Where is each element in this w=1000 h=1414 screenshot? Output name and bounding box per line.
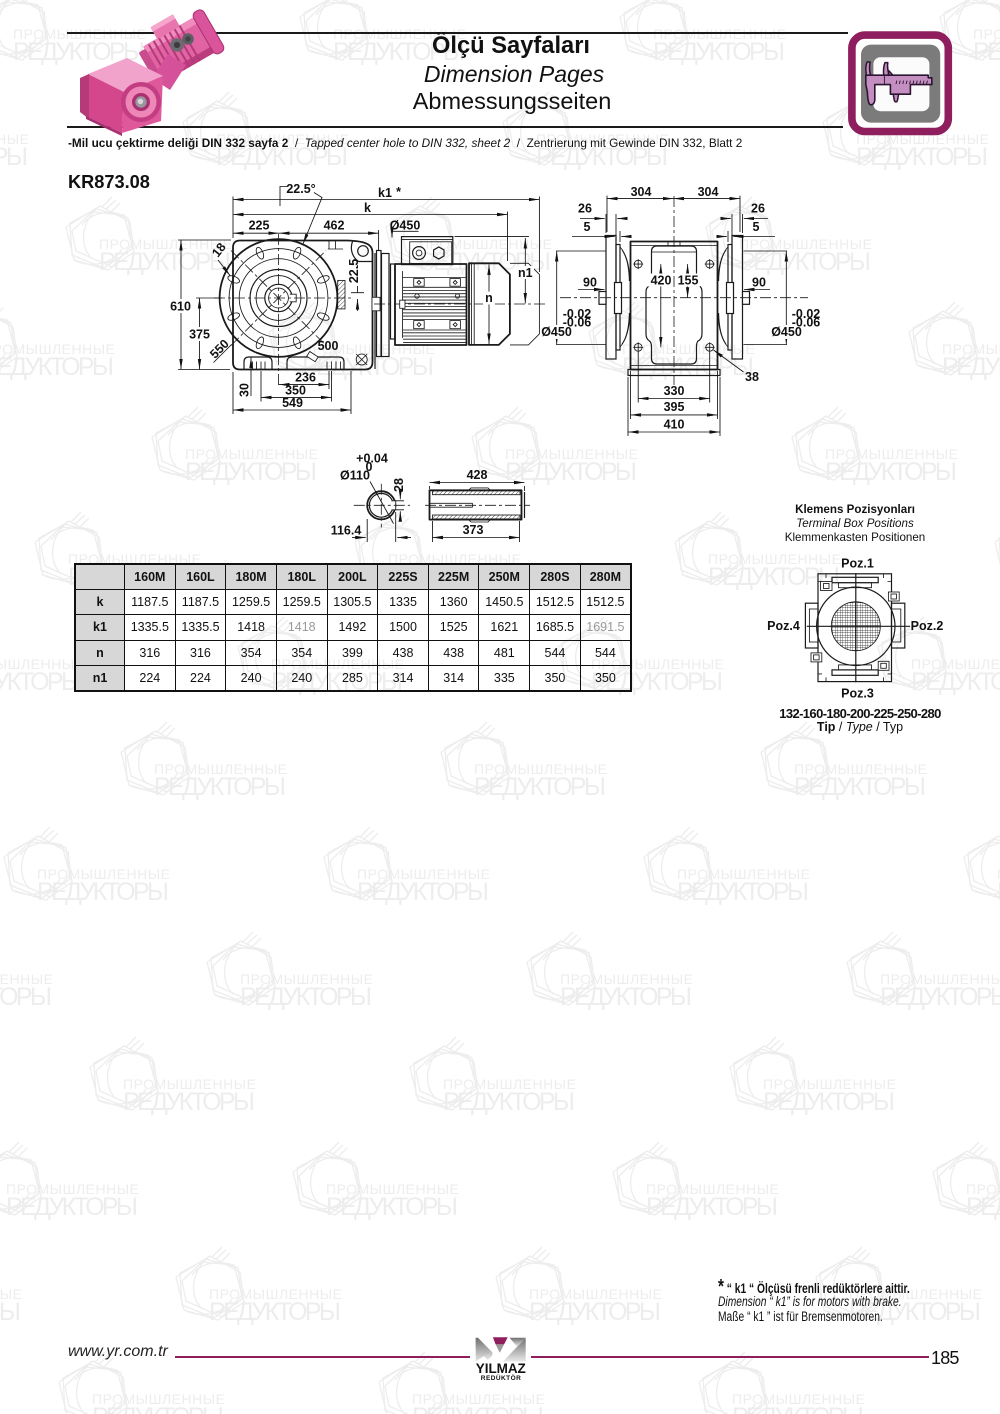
svg-text:330: 330 bbox=[664, 384, 685, 398]
svg-text:155: 155 bbox=[678, 274, 699, 288]
svg-text:90: 90 bbox=[752, 276, 766, 290]
svg-text:k1: k1 bbox=[378, 186, 392, 200]
svg-text:Ø450: Ø450 bbox=[390, 219, 421, 233]
svg-text:n1: n1 bbox=[518, 266, 533, 280]
svg-text:REDÜKTÖR: REDÜKTÖR bbox=[481, 1373, 521, 1382]
svg-text:22.5°: 22.5° bbox=[286, 182, 315, 196]
svg-text:236: 236 bbox=[295, 371, 316, 385]
svg-text:22.5: 22.5 bbox=[347, 259, 361, 283]
svg-text:28: 28 bbox=[392, 478, 406, 492]
svg-text:n: n bbox=[485, 291, 493, 305]
svg-text:30: 30 bbox=[238, 383, 252, 397]
svg-text:26: 26 bbox=[578, 202, 592, 216]
svg-text:304: 304 bbox=[631, 185, 652, 199]
svg-text:373: 373 bbox=[463, 523, 484, 537]
svg-text:549: 549 bbox=[282, 396, 303, 410]
svg-text:38: 38 bbox=[745, 370, 759, 384]
svg-text:*: * bbox=[396, 185, 401, 199]
svg-text:428: 428 bbox=[467, 468, 488, 482]
svg-text:5: 5 bbox=[753, 220, 760, 234]
svg-text:462: 462 bbox=[324, 219, 345, 233]
svg-text:304: 304 bbox=[698, 185, 719, 199]
svg-text:610: 610 bbox=[170, 300, 191, 314]
svg-text:Ø110: Ø110 bbox=[340, 469, 370, 483]
svg-text:YILMAZ: YILMAZ bbox=[476, 1361, 526, 1376]
svg-text:375: 375 bbox=[189, 328, 210, 342]
svg-text:Poz.4: Poz.4 bbox=[767, 619, 800, 633]
svg-text:Poz.2: Poz.2 bbox=[911, 619, 944, 633]
svg-text:420: 420 bbox=[651, 274, 672, 288]
svg-text:-0.06: -0.06 bbox=[792, 316, 821, 330]
svg-text:410: 410 bbox=[664, 418, 685, 432]
svg-text:500: 500 bbox=[318, 339, 339, 353]
svg-text:18: 18 bbox=[209, 240, 229, 260]
svg-text:116.4: 116.4 bbox=[331, 524, 362, 538]
svg-text:-0.06: -0.06 bbox=[563, 316, 592, 330]
svg-text:Poz.1: Poz.1 bbox=[841, 557, 874, 571]
svg-text:225: 225 bbox=[249, 219, 270, 233]
svg-text:Poz.3: Poz.3 bbox=[841, 687, 874, 701]
svg-text:395: 395 bbox=[664, 400, 685, 414]
svg-text:90: 90 bbox=[583, 276, 597, 290]
svg-text:26: 26 bbox=[751, 202, 765, 216]
svg-text:5: 5 bbox=[584, 220, 591, 234]
svg-text:k: k bbox=[364, 201, 371, 215]
